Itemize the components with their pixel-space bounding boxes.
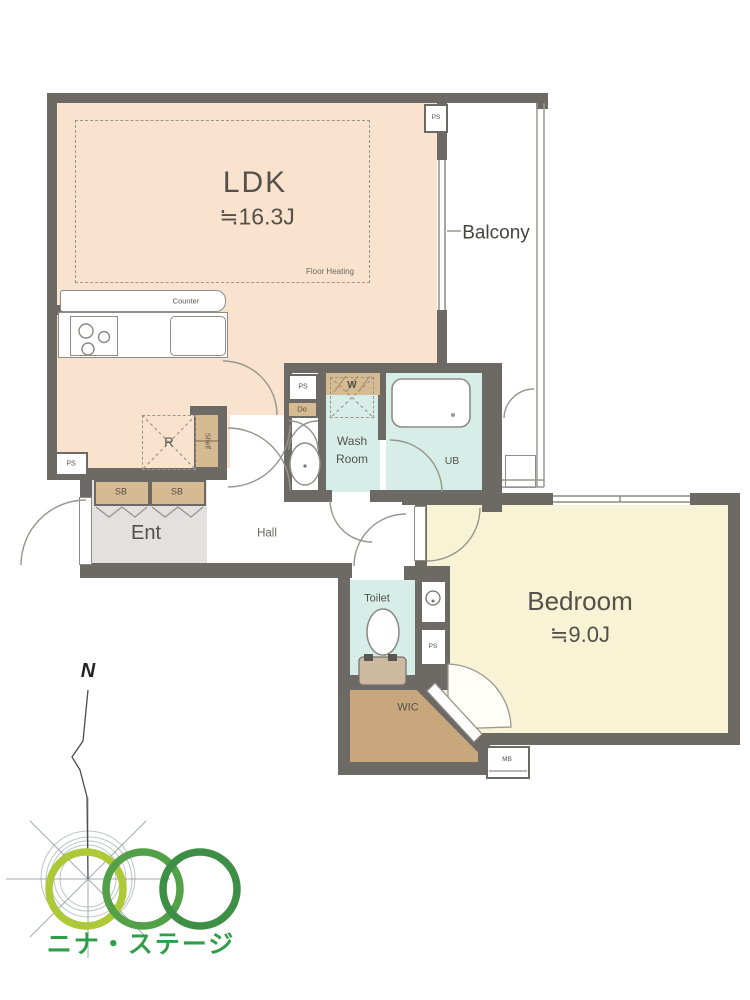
compass-rose [6,690,170,958]
ldk-balcony-window [439,160,445,310]
basin-drain [303,464,306,467]
bedroom-window [553,496,690,502]
meter-box-label: MB [502,757,512,764]
refrigerator-label: R [164,436,173,449]
wic-label: WIC [397,703,418,714]
paper-holder-dot [432,600,435,603]
floor-plan: LDK ≒16.3J Floor Heating Counter R Shelf… [0,0,750,1000]
ldk-size-label: ≒16.3J [219,206,295,229]
floor-heating-label: Floor Heating [306,268,354,276]
shelf-label: Shelf [204,433,211,449]
hall-label: Hall [257,528,277,540]
stove-burners [79,324,110,355]
ps-top-label: PS [432,115,441,122]
balcony-railing [447,103,544,487]
ps-utility-label: PS [298,384,307,391]
washroom-label-line1: Wash [337,435,367,447]
bedroom-label: Bedroom [527,588,633,614]
do-label: Do [297,405,307,413]
ps-entry-label: PS [66,461,75,468]
paper-holder-icon [426,591,440,605]
washroom-label-line2: Room [336,453,368,465]
toilet-bowl [367,609,399,655]
shoe-box-2-label: SB [171,488,183,497]
logo-circles [49,852,237,926]
bath-label: UB [445,456,460,467]
entrance-label: Ent [131,523,161,543]
balcony-label: Balcony [462,224,530,243]
bathtub-drain [451,413,455,417]
shoe-box-1-label: SB [115,488,127,497]
toilet-knob [364,654,373,661]
north-label: N [81,661,95,681]
plan-linework [0,0,750,1000]
ldk-label: LDK [223,168,287,198]
ps-toilet-label: PS [429,644,438,651]
bedroom-size-label: ≒9.0J [550,624,610,646]
wash-basin [290,443,320,485]
shoe-box-zigzag [96,507,203,517]
bathtub [392,379,470,427]
toilet-tank [359,657,406,685]
logo-text: ニナ・ステージ [47,933,236,958]
counter-label: Counter [173,297,200,305]
washer-label: W [347,381,356,391]
toilet-label: Toilet [364,594,390,605]
toilet-knob [388,654,397,661]
